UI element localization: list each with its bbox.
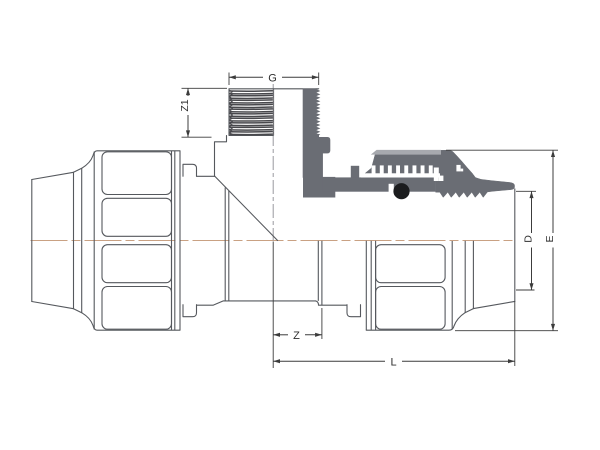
svg-text:L: L <box>390 357 396 369</box>
svg-text:Z: Z <box>293 330 300 342</box>
svg-text:Z1: Z1 <box>179 99 191 111</box>
svg-text:G: G <box>268 73 277 85</box>
svg-text:D: D <box>523 235 535 243</box>
svg-text:E: E <box>544 235 556 242</box>
